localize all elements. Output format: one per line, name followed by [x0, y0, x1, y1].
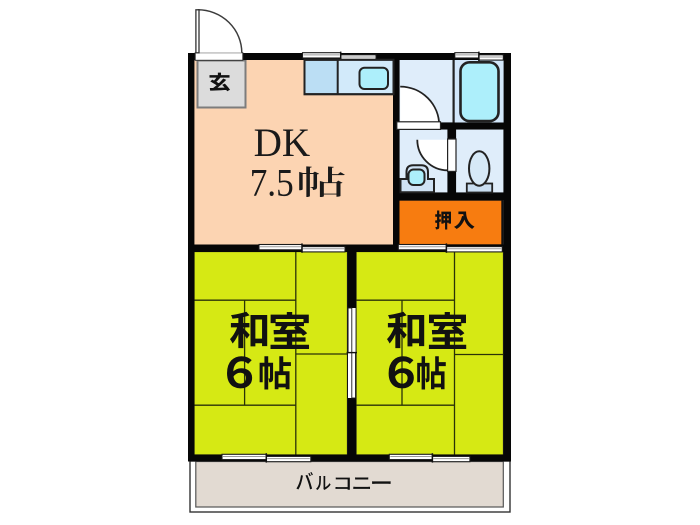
svg-text:DK: DK — [254, 120, 311, 165]
svg-text:7.5: 7.5 — [250, 162, 294, 205]
